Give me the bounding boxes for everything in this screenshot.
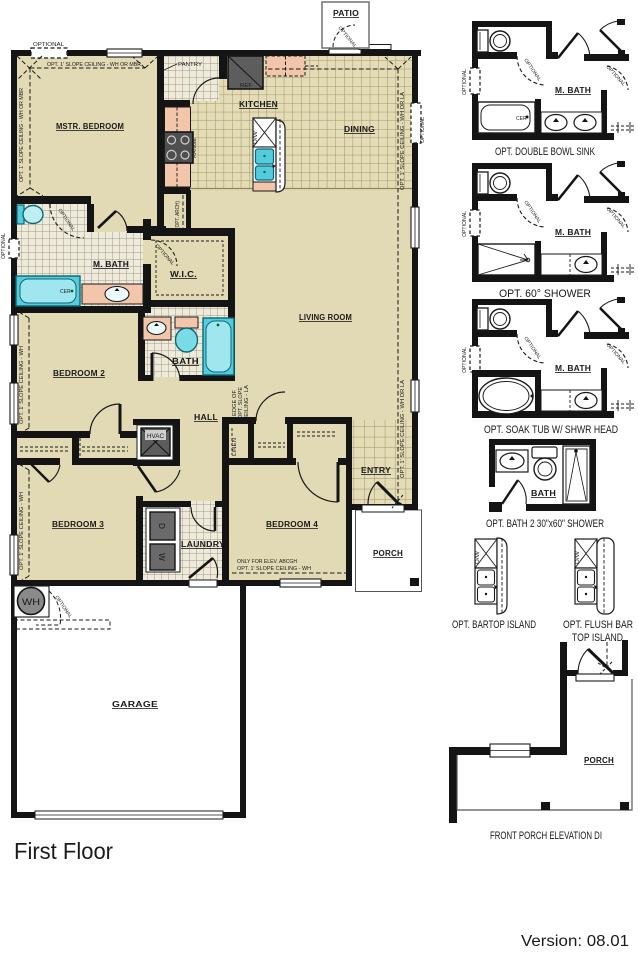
svg-text:OPT. FLUSH BAR: OPT. FLUSH BAR [563, 619, 633, 631]
svg-text:CEILING - LA: CEILING - LA [244, 384, 250, 421]
svg-text:OPT. 1' SLOPE CEILING - WH: OPT. 1' SLOPE CEILING - WH [19, 346, 25, 424]
svg-text:KITCHEN: KITCHEN [239, 100, 278, 109]
svg-text:ONLY FOR ELEV. ABCGH: ONLY FOR ELEV. ABCGH [237, 559, 297, 565]
svg-text:OPT. 1' SLOPE CEILING - WH: OPT. 1' SLOPE CEILING - WH [237, 566, 311, 572]
svg-text:OPT. SOAK TUB W/ SHWR HEAD: OPT. SOAK TUB W/ SHWR HEAD [484, 424, 618, 436]
svg-text:CER: CER [516, 116, 527, 122]
svg-text:D/W: D/W [475, 551, 481, 564]
svg-text:(OPT. ARCH): (OPT. ARCH) [175, 201, 181, 229]
svg-text:OPTIONAL: OPTIONAL [1, 233, 7, 259]
svg-text:RANGE: RANGE [192, 137, 198, 158]
svg-text:PATIO: PATIO [333, 9, 359, 18]
svg-text:LINEN: LINEN [232, 438, 238, 456]
svg-text:D/W: D/W [575, 551, 581, 564]
svg-text:PORCH: PORCH [373, 549, 403, 558]
svg-text:W.I.C.: W.I.C. [170, 270, 197, 279]
svg-text:OPT. 1' SLOPE CEILING - WH OR: OPT. 1' SLOPE CEILING - WH OR LA [400, 379, 406, 478]
svg-text:HALL: HALL [194, 413, 218, 422]
svg-text:PANTRY: PANTRY [178, 62, 203, 68]
svg-text:OPT. 1' SLOPE CEILING - WH: OPT. 1' SLOPE CEILING - WH [19, 492, 25, 570]
svg-text:PORCH: PORCH [584, 756, 614, 765]
svg-text:OPT. BATH 2 30"x60" SHOWER: OPT. BATH 2 30"x60" SHOWER [486, 518, 604, 530]
svg-text:HVAC: HVAC [147, 434, 165, 440]
svg-text:OPTIONAL: OPTIONAL [462, 69, 468, 95]
svg-text:OPTIONAL: OPTIONAL [420, 117, 426, 143]
svg-text:W: W [157, 553, 166, 561]
svg-text:DINING: DINING [344, 125, 375, 134]
svg-text:OPT. 1' SLOPE CEILING - WH OR: OPT. 1' SLOPE CEILING - WH OR MBR [19, 88, 25, 182]
svg-text:D: D [157, 523, 166, 529]
svg-text:BEDROOM 2: BEDROOM 2 [53, 369, 105, 378]
svg-text:OPT. DOUBLE BOWL SINK: OPT. DOUBLE BOWL SINK [495, 146, 595, 158]
svg-text:OPTIONAL: OPTIONAL [33, 42, 64, 48]
svg-text:MSTR. BEDROOM: MSTR. BEDROOM [56, 122, 124, 131]
svg-text:LIVING ROOM: LIVING ROOM [299, 313, 352, 322]
svg-text:FRONT PORCH ELEVATION DI: FRONT PORCH ELEVATION DI [490, 830, 602, 842]
svg-text:M. BATH: M. BATH [555, 86, 591, 95]
svg-text:BATH: BATH [172, 357, 199, 366]
svg-text:REF: REF [240, 83, 253, 89]
svg-text:OPT. 1' SLOPE CEILING - WH OR: OPT. 1' SLOPE CEILING - WH OR LA [400, 91, 406, 190]
svg-text:Version: 08.01: Version: 08.01 [521, 933, 629, 950]
svg-text:First Floor: First Floor [14, 838, 113, 864]
svg-text:BATH: BATH [531, 489, 556, 498]
svg-text:ENTRY: ENTRY [361, 466, 391, 475]
svg-text:OPT. 60° SHOWER: OPT. 60° SHOWER [499, 288, 591, 300]
svg-text:M. BATH: M. BATH [93, 260, 129, 269]
svg-text:BEDROOM 4: BEDROOM 4 [266, 520, 318, 529]
svg-text:LAUNDRY: LAUNDRY [181, 540, 226, 549]
svg-text:WH: WH [22, 597, 40, 607]
svg-text:TOP ISLAND: TOP ISLAND [572, 632, 623, 644]
svg-text:OPT. BARTOP ISLAND: OPT. BARTOP ISLAND [452, 619, 536, 631]
svg-text:D/W: D/W [253, 131, 259, 144]
svg-text:BEDROOM 3: BEDROOM 3 [52, 520, 104, 529]
svg-text:OPT. 1' SLOPE CEILING - WH OR: OPT. 1' SLOPE CEILING - WH OR MBR [47, 62, 141, 68]
svg-text:CER: CER [60, 289, 71, 295]
svg-text:GARAGE: GARAGE [112, 700, 159, 709]
